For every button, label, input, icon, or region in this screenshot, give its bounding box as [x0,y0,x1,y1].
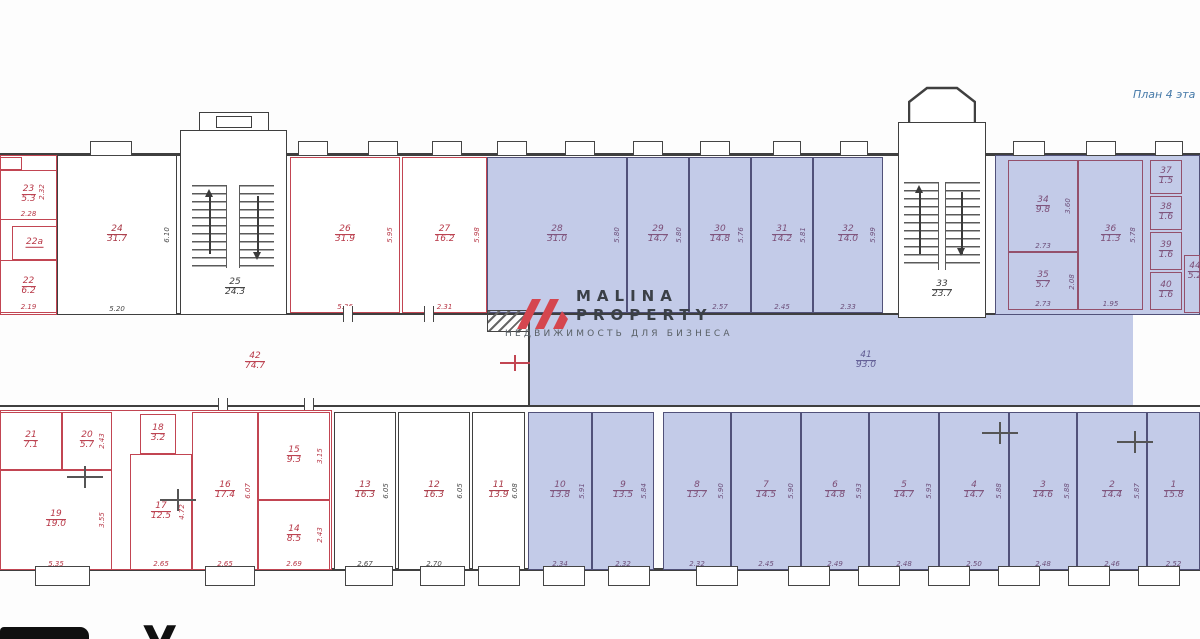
window-mark [345,566,393,586]
dim-label: 6.05 [382,483,390,499]
stair-treads [904,182,938,270]
stairwell-25-shaft [216,116,252,128]
room-label: 714.5 [756,481,776,501]
dim-label: 5.95 [386,227,394,243]
room-34: 349.8 2.73 3.60 [1008,160,1078,252]
room-label: 115.8 [1163,481,1183,501]
room-label: 1013.8 [550,481,570,501]
plan-title: План 4 эта [1133,88,1200,101]
corridor-41-label: 4193.0 [856,351,876,371]
dim-label: 5.93 [925,483,933,499]
window-mark [1086,141,1116,156]
room-24: 2431.7 5.20 6.10 [57,155,177,315]
room-13: 1316.3 2.67 6.05 [334,412,396,570]
dim-label: 5.90 [787,483,795,499]
room-40: 401.6 [1150,272,1182,310]
dim-label: 1.95 [1103,300,1119,308]
dim-label: 5.93 [855,483,863,499]
dim-label: 6.08 [511,483,519,499]
window-mark [1138,566,1180,586]
window-mark [1068,566,1110,586]
dim-label: 2.43 [316,527,324,543]
room-19: 1919.0 5.35 3.55 [0,470,112,570]
watermark-tagline: НЕДВИЖИМОСТЬ ДЛЯ БИЗНЕСА [505,329,733,339]
window-mark [608,566,650,586]
room-label: 148.5 [287,525,301,545]
window-mark [35,566,90,586]
room-label: 2631.9 [335,225,355,245]
stair-stringer [226,185,240,268]
room-17: 1712.5 2.65 4.72 [130,454,192,570]
room-1: 115.8 2.52 [1147,412,1200,570]
window-mark [700,141,730,156]
room-label: 226.2 [21,277,35,297]
window-mark [90,141,132,156]
watermark-brand: MALINA PROPERTY [576,287,713,325]
dim-label: 5.76 [737,227,745,243]
dim-label: 5.90 [717,483,725,499]
footer-partial-heading: У [142,620,177,639]
room-label: 1113.9 [488,481,508,501]
door-mark [424,306,434,322]
centerline-cross [84,466,86,488]
window-mark [928,566,970,586]
dim-label: 2.45 [774,303,790,311]
room-label: 183.2 [151,424,165,444]
door-mark [343,306,353,322]
window-mark [633,141,663,156]
malina-logo [516,291,576,331]
room-label: 314.6 [1033,481,1053,501]
room-26: 2631.9 5.36 5.95 [290,157,400,313]
dim-label: 6.05 [456,483,464,499]
room-label: 355.7 [1036,271,1050,291]
window-mark [998,566,1040,586]
room-20: 205.7 2.43 [62,412,112,470]
dim-label: 3.55 [98,512,106,528]
room-31: 3114.2 2.45 5.81 [751,157,813,313]
dim-label: 5.78 [1129,227,1137,243]
window-mark [696,566,738,586]
dim-label: 5.84 [640,483,648,499]
stairs-up-arrow-icon [919,192,921,254]
dim-label: 5.87 [1133,483,1141,499]
window-mark [432,141,462,156]
corridor-42-label: 4274.7 [245,352,265,372]
room-44-label: 445.2 [1188,262,1200,282]
window-mark [1155,141,1183,156]
dim-label: 5.88 [1063,483,1071,499]
centerline-cross [999,422,1001,444]
dim-label: 2.08 [1068,274,1076,290]
room-label: 2831.0 [547,225,567,245]
dim-label: 5.88 [995,483,1003,499]
dim-label: 5.80 [613,227,621,243]
window-mark [497,141,527,156]
room-label: 514.7 [894,481,914,501]
room-37: 371.5 [1150,160,1182,194]
room-label: 1617.4 [215,481,235,501]
stairwell-label: 3323.7 [932,280,952,300]
dim-label: 2.43 [98,433,106,449]
centerline-cross [514,355,516,371]
room-22: 226.2 2.19 [0,260,57,313]
room-label: 913.5 [613,481,633,501]
dim-label: 3.60 [1064,198,1072,214]
stairs-down-arrow-icon [961,192,963,254]
room-label: 2914.7 [648,225,668,245]
room-label: 235.3 [21,185,35,205]
dim-label: 3.15 [316,448,324,464]
room-label: 217.1 [24,431,38,451]
dim-label: 2.65 [153,560,169,568]
dim-label: 2.33 [840,303,856,311]
centerline-cross [177,489,179,511]
dim-label: 2.45 [758,560,774,568]
room-label: 371.5 [1159,167,1173,187]
room-9: 913.5 2.32 5.84 [592,412,654,570]
room-label: 1216.3 [424,481,444,501]
room-label: 813.7 [687,481,707,501]
window-mark [565,141,595,156]
room-7: 714.5 2.45 5.90 [731,412,801,570]
room-8: 813.7 2.32 5.90 [663,412,731,570]
stair-treads [946,182,980,270]
room-12: 1216.3 2.70 6.05 [398,412,470,570]
dim-label: 5.91 [578,483,586,499]
room-label: 159.3 [287,446,301,466]
dim-label: 6.10 [163,227,171,243]
window-mark [298,141,328,156]
stairs-up-arrow-icon [209,196,211,254]
room-5: 514.7 2.48 5.93 [869,412,939,570]
dim-label: 5.81 [799,227,807,243]
room-27: 2716.2 2.31 5.98 [402,157,487,313]
window-mark [420,566,465,586]
room-label: 401.6 [1159,281,1173,301]
room-11: 1113.9 6.08 [472,412,525,570]
dim-label: 2.32 [38,184,46,200]
dim-label: 4.72 [178,504,186,520]
stairwell-label: 2524.3 [225,278,245,298]
room-36: 3611.3 1.95 5.78 [1078,160,1143,310]
corridor-wall-lower [0,405,1200,407]
window-mark [773,141,801,156]
window-mark [1013,141,1045,156]
room-3: 314.6 2.48 5.88 [1009,412,1077,570]
dim-label: 5.98 [473,227,481,243]
room-label: 2716.2 [434,225,454,245]
stairwell-33-bay [908,86,976,126]
room-6: 614.8 2.49 5.93 [801,412,869,570]
room-22a: 22а [12,226,57,260]
room-label: 2431.7 [107,225,127,245]
stairs-down-arrow-head-icon [957,248,965,256]
room-14: 148.5 2.69 2.43 [258,500,330,570]
footer-black-block [0,627,89,639]
dim-label: 6.07 [244,483,252,499]
stairs-down-arrow-head-icon [253,252,261,260]
window-mark [543,566,585,586]
room-10: 1013.8 2.34 5.91 [528,412,592,570]
room-label: 214.4 [1102,481,1122,501]
window-mark [205,566,255,586]
room-16: 1617.4 2.65 6.07 [192,412,258,570]
stairs-up-arrow-head-icon [915,185,923,193]
floor-plan: 235.3 2.28 22а 226.2 2.19 2.32 2431.7 5.… [0,0,1200,639]
room-label: 391.6 [1159,241,1173,261]
room-2: 214.4 2.46 5.87 [1077,412,1147,570]
room-label: 1712.5 [151,502,171,522]
dim-label: 2.57 [712,303,728,311]
stairs-down-arrow-icon [257,196,259,254]
room-label: 1919.0 [46,510,66,530]
window-mark [858,566,900,586]
stairs-up-arrow-head-icon [205,189,213,197]
centerline-cross [1134,431,1136,453]
dim-label: 2.19 [21,303,37,311]
room-18: 183.2 [140,414,176,454]
room-label: 414.7 [964,481,984,501]
dim-label: 5.20 [109,305,125,313]
dim-label: 2.28 [21,210,37,218]
room-label: 3114.2 [772,225,792,245]
room-label: 3611.3 [1100,225,1120,245]
room-label: 22а [25,238,44,248]
room-label: 1316.3 [355,481,375,501]
window-mark [788,566,830,586]
room-label: 614.8 [825,481,845,501]
dim-label: 5.99 [869,227,877,243]
window-mark [368,141,398,156]
room-label: 3014.8 [710,225,730,245]
room-label: 349.8 [1036,196,1050,216]
corner-room [0,157,22,170]
room-38: 381.6 [1150,196,1182,230]
dim-label: 2.69 [286,560,302,568]
room-32: 3214.0 2.33 5.99 [813,157,883,313]
room-15: 159.3 3.15 [258,412,330,500]
dim-label: 2.73 [1035,242,1051,250]
window-mark [840,141,868,156]
stair-stringer [938,182,946,270]
window-mark [478,566,520,586]
room-label: 381.6 [1159,203,1173,223]
dim-label: 5.80 [675,227,683,243]
dim-label: 2.31 [437,303,453,311]
room-label: 205.7 [80,431,94,451]
room-label: 3214.0 [838,225,858,245]
room-21: 217.1 [0,412,62,470]
dim-label: 2.73 [1035,300,1051,308]
room-39: 391.6 [1150,232,1182,270]
room-23: 235.3 2.28 [0,170,57,220]
